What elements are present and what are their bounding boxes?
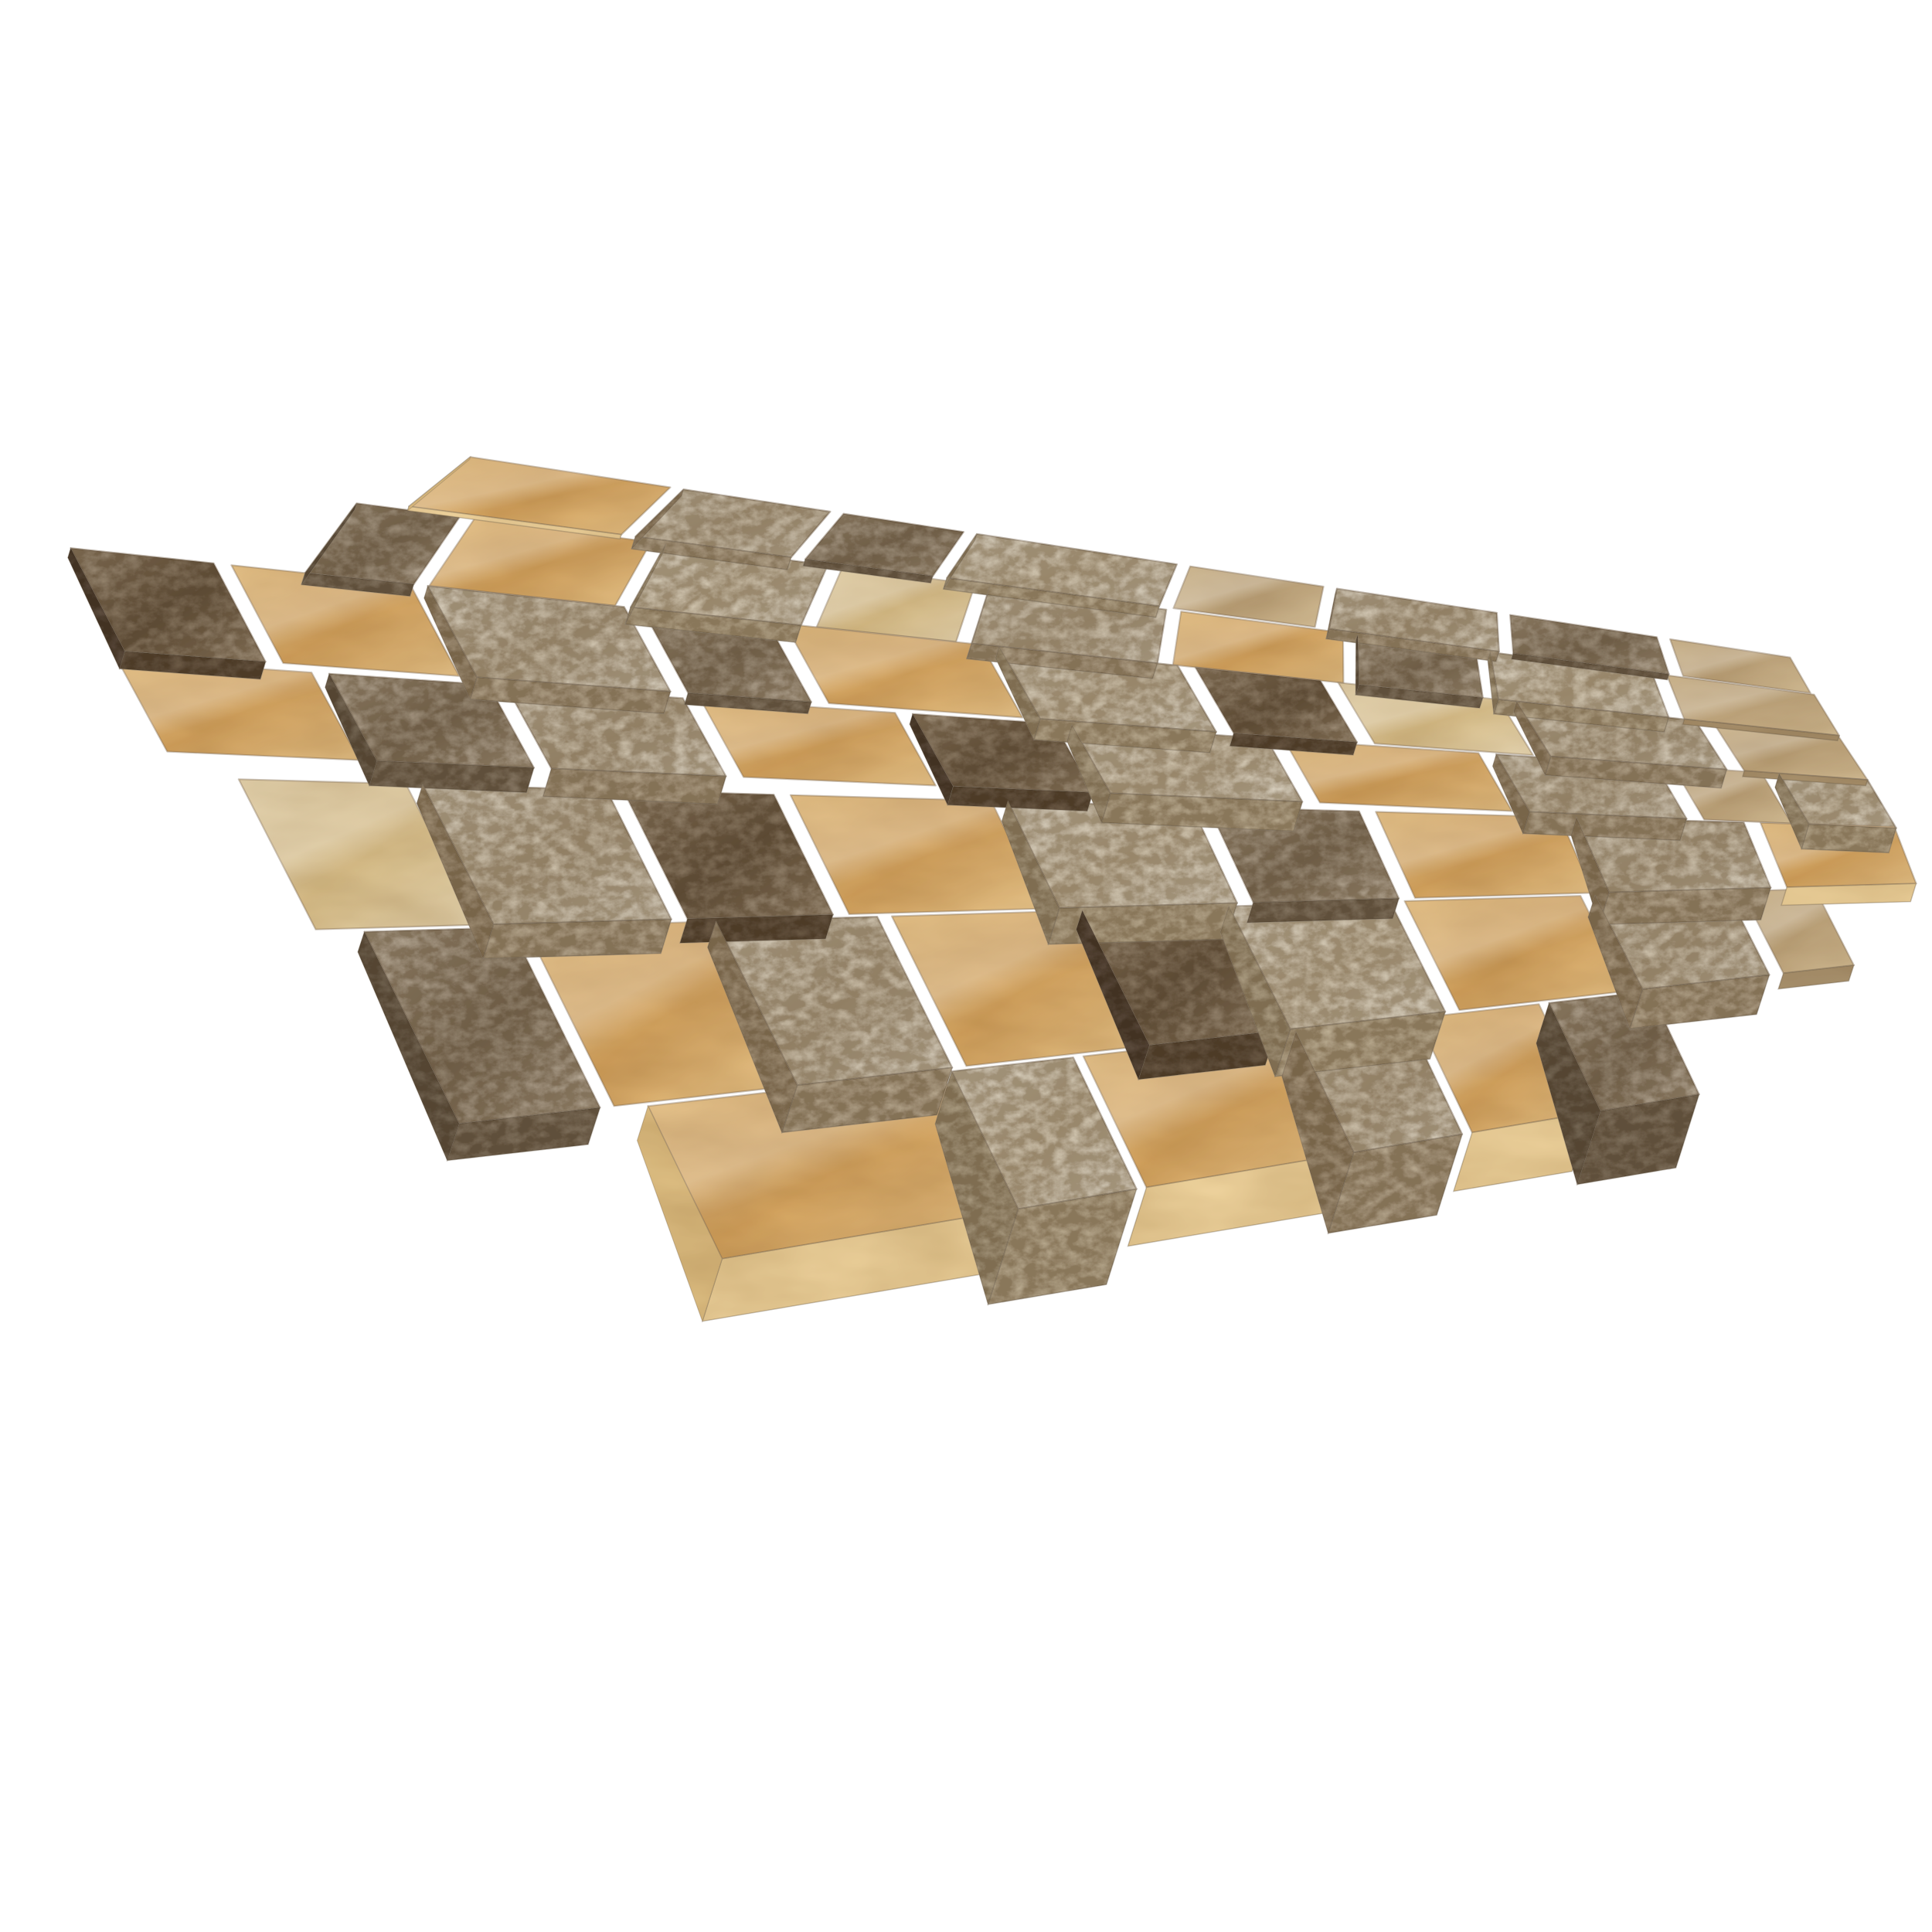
stone-brick-end-silver-travertine-splitface bbox=[1355, 634, 1359, 695]
stone-brick-side-white-travertine-splitface bbox=[1599, 888, 1770, 925]
stone-panel-photo bbox=[0, 0, 1932, 1932]
stone-brick-side-white-travertine-splitface bbox=[483, 920, 672, 959]
product-photo-stage bbox=[0, 0, 1932, 1932]
stone-brick-sheen bbox=[701, 699, 936, 786]
stone-brick-side-honey-onyx-polished bbox=[1781, 883, 1917, 905]
stone-brick-side-cream-travertine-splitface bbox=[1801, 825, 1896, 853]
stone-brick-side-brown-veined-travertine bbox=[680, 915, 833, 944]
stone-brick-side-silver-travertine-splitface bbox=[1247, 899, 1399, 923]
stone-brick-side-cream-travertine-splitface bbox=[1048, 903, 1237, 944]
